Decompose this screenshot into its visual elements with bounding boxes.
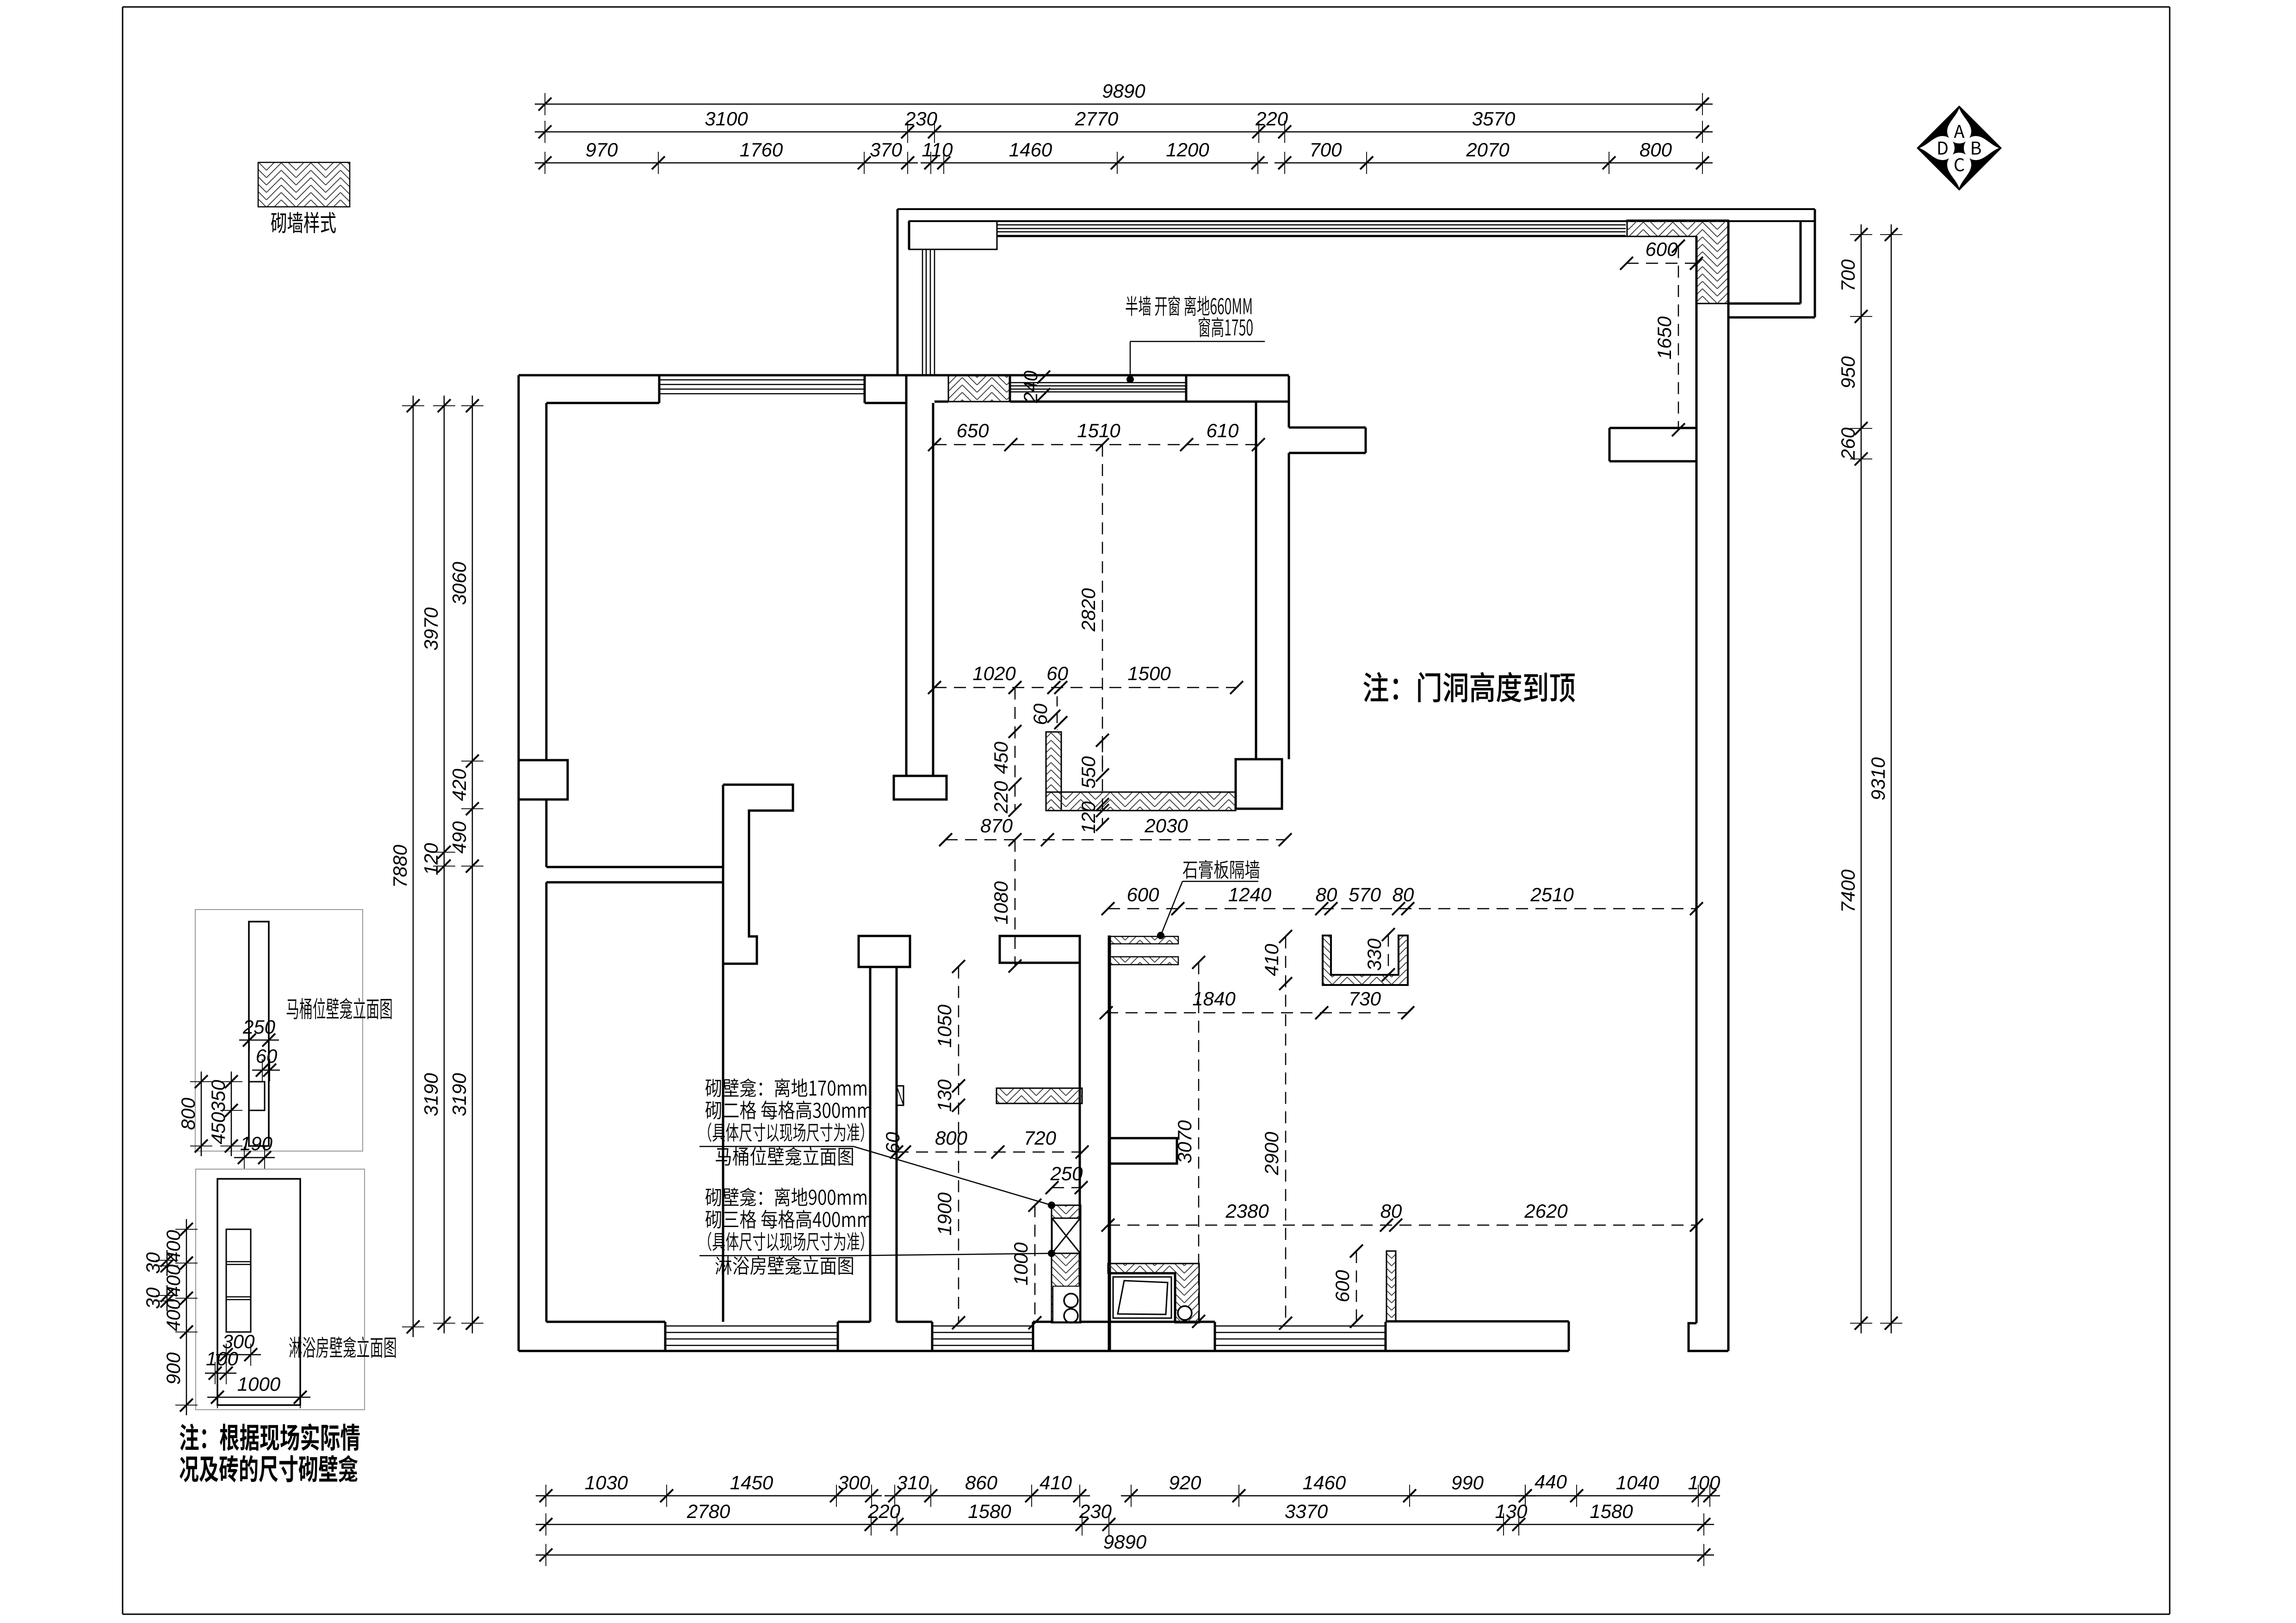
svg-text:600: 600 bbox=[1645, 238, 1678, 260]
svg-text:400: 400 bbox=[162, 1230, 184, 1263]
svg-text:800: 800 bbox=[935, 1127, 968, 1149]
svg-text:130: 130 bbox=[934, 1079, 955, 1112]
svg-text:870: 870 bbox=[980, 815, 1013, 836]
svg-text:1080: 1080 bbox=[990, 881, 1012, 924]
svg-text:230: 230 bbox=[904, 108, 938, 130]
svg-text:2070: 2070 bbox=[1466, 139, 1510, 161]
svg-text:120: 120 bbox=[420, 842, 442, 875]
svg-text:2380: 2380 bbox=[1225, 1200, 1269, 1222]
svg-text:400: 400 bbox=[162, 1264, 184, 1297]
svg-text:410: 410 bbox=[1040, 1472, 1072, 1493]
svg-text:1900: 1900 bbox=[934, 1192, 955, 1236]
svg-text:1040: 1040 bbox=[1616, 1472, 1659, 1493]
svg-text:60: 60 bbox=[256, 1045, 278, 1067]
svg-text:60: 60 bbox=[1029, 703, 1051, 725]
svg-text:440: 440 bbox=[1535, 1471, 1567, 1493]
svg-text:970: 970 bbox=[585, 139, 618, 161]
svg-text:60: 60 bbox=[882, 1132, 904, 1153]
svg-text:1580: 1580 bbox=[1590, 1500, 1633, 1522]
svg-text:3060: 3060 bbox=[448, 562, 470, 605]
svg-text:1000: 1000 bbox=[1010, 1242, 1032, 1286]
svg-text:300: 300 bbox=[838, 1472, 871, 1493]
svg-text:30: 30 bbox=[142, 1287, 164, 1309]
svg-text:650: 650 bbox=[956, 420, 989, 441]
svg-text:3370: 3370 bbox=[1285, 1500, 1328, 1522]
svg-text:490: 490 bbox=[448, 821, 470, 854]
svg-text:990: 990 bbox=[1451, 1472, 1484, 1493]
svg-text:130: 130 bbox=[1495, 1500, 1528, 1522]
svg-text:260: 260 bbox=[1837, 427, 1859, 460]
svg-text:420: 420 bbox=[448, 768, 470, 801]
svg-text:900: 900 bbox=[162, 1352, 184, 1385]
svg-text:3190: 3190 bbox=[448, 1073, 470, 1116]
svg-text:9310: 9310 bbox=[1867, 757, 1889, 800]
svg-text:230: 230 bbox=[1079, 1500, 1112, 1522]
svg-text:700: 700 bbox=[1309, 139, 1342, 161]
svg-text:1030: 1030 bbox=[585, 1472, 628, 1493]
svg-text:1460: 1460 bbox=[1009, 139, 1052, 161]
svg-text:1460: 1460 bbox=[1303, 1472, 1346, 1493]
svg-text:610: 610 bbox=[1206, 420, 1239, 441]
svg-text:370: 370 bbox=[870, 139, 903, 161]
svg-text:2510: 2510 bbox=[1530, 884, 1574, 905]
svg-text:950: 950 bbox=[1837, 356, 1859, 389]
svg-text:800: 800 bbox=[177, 1097, 199, 1130]
svg-text:2820: 2820 bbox=[1077, 588, 1099, 632]
svg-text:3100: 3100 bbox=[705, 108, 748, 130]
svg-text:2620: 2620 bbox=[1524, 1200, 1568, 1222]
svg-text:60: 60 bbox=[1046, 663, 1068, 684]
svg-text:720: 720 bbox=[1024, 1127, 1057, 1149]
svg-text:1840: 1840 bbox=[1192, 988, 1236, 1010]
svg-text:2780: 2780 bbox=[687, 1500, 730, 1522]
svg-text:3190: 3190 bbox=[420, 1073, 442, 1116]
svg-text:2030: 2030 bbox=[1144, 815, 1188, 836]
svg-text:220: 220 bbox=[990, 781, 1012, 814]
svg-text:3970: 3970 bbox=[420, 607, 442, 650]
svg-text:2770: 2770 bbox=[1075, 108, 1119, 130]
svg-text:3070: 3070 bbox=[1174, 1120, 1195, 1164]
svg-text:1650: 1650 bbox=[1653, 316, 1675, 359]
svg-text:350: 350 bbox=[207, 1079, 229, 1112]
svg-text:410: 410 bbox=[1261, 943, 1282, 976]
svg-text:80: 80 bbox=[1392, 884, 1414, 905]
svg-text:310: 310 bbox=[897, 1472, 929, 1493]
svg-text:30: 30 bbox=[142, 1252, 164, 1274]
svg-text:1240: 1240 bbox=[1228, 884, 1272, 905]
svg-text:1200: 1200 bbox=[1166, 139, 1209, 161]
svg-text:100: 100 bbox=[206, 1348, 239, 1369]
svg-text:7880: 7880 bbox=[389, 844, 411, 888]
svg-text:550: 550 bbox=[1077, 756, 1099, 789]
svg-text:240: 240 bbox=[1020, 370, 1041, 403]
svg-text:700: 700 bbox=[1837, 259, 1859, 292]
svg-text:600: 600 bbox=[1331, 1270, 1353, 1302]
svg-text:250: 250 bbox=[1050, 1163, 1083, 1184]
svg-text:9890: 9890 bbox=[1102, 80, 1145, 102]
svg-text:250: 250 bbox=[242, 1016, 276, 1038]
svg-text:220: 220 bbox=[1255, 108, 1288, 130]
svg-text:190: 190 bbox=[240, 1133, 273, 1154]
svg-text:220: 220 bbox=[867, 1500, 901, 1522]
svg-text:450: 450 bbox=[990, 741, 1012, 774]
svg-text:450: 450 bbox=[207, 1112, 229, 1145]
svg-text:920: 920 bbox=[1169, 1472, 1201, 1493]
svg-text:600: 600 bbox=[1126, 884, 1159, 905]
svg-text:1500: 1500 bbox=[1127, 663, 1171, 684]
svg-text:330: 330 bbox=[1363, 938, 1385, 971]
svg-text:7400: 7400 bbox=[1837, 869, 1859, 913]
svg-text:800: 800 bbox=[1640, 139, 1672, 161]
svg-text:100: 100 bbox=[1688, 1472, 1720, 1493]
svg-text:1450: 1450 bbox=[730, 1472, 774, 1493]
svg-text:9890: 9890 bbox=[1103, 1531, 1147, 1553]
svg-text:110: 110 bbox=[922, 139, 953, 161]
svg-text:730: 730 bbox=[1349, 988, 1381, 1010]
svg-text:1020: 1020 bbox=[972, 663, 1016, 684]
svg-text:2900: 2900 bbox=[1261, 1132, 1282, 1176]
svg-text:1000: 1000 bbox=[237, 1373, 281, 1395]
svg-text:570: 570 bbox=[1349, 884, 1381, 905]
svg-text:80: 80 bbox=[1380, 1200, 1402, 1222]
svg-text:1510: 1510 bbox=[1077, 420, 1120, 441]
svg-text:120: 120 bbox=[1077, 801, 1099, 834]
svg-text:1580: 1580 bbox=[968, 1500, 1011, 1522]
svg-text:860: 860 bbox=[965, 1472, 998, 1493]
svg-text:80: 80 bbox=[1316, 884, 1337, 905]
svg-text:1760: 1760 bbox=[740, 139, 783, 161]
svg-text:3570: 3570 bbox=[1472, 108, 1516, 130]
svg-text:1050: 1050 bbox=[934, 1004, 955, 1048]
